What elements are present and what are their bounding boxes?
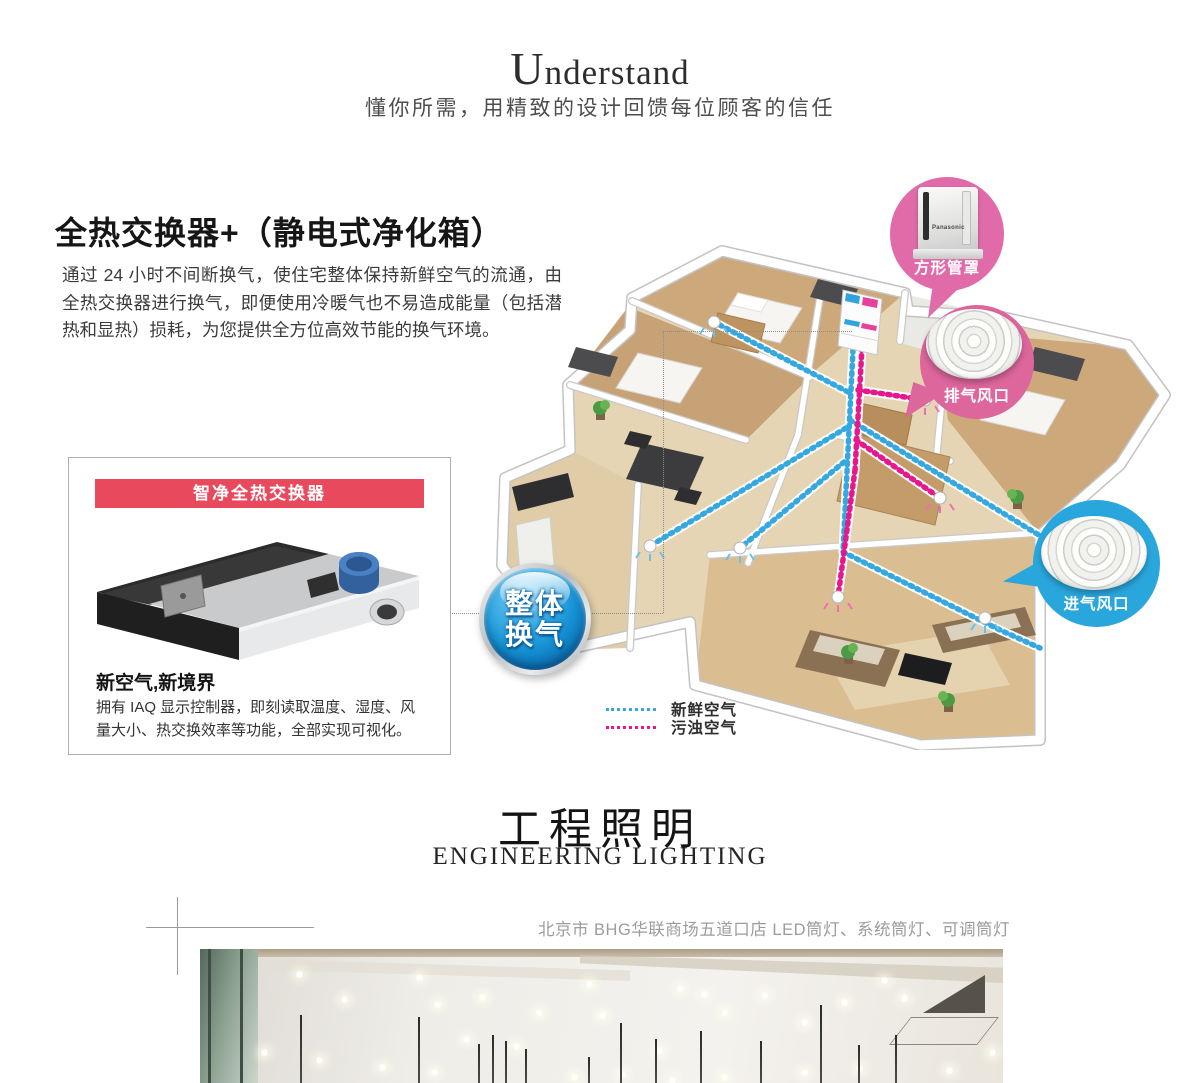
ceiling-downlight [478, 994, 487, 1001]
callout-label-exhaust: 排气风口 [920, 384, 1034, 406]
intake-vent-image [1041, 516, 1147, 590]
device-slot-right [962, 191, 971, 245]
whole-house-ventilation-badge: 整体 换气 [479, 563, 591, 675]
callout-exhaust-vent: 排气风口 [920, 305, 1034, 419]
ceiling-downlight [840, 999, 849, 1006]
hanging-rod [820, 1005, 822, 1083]
device-slot [923, 192, 929, 240]
hanging-rod [300, 1015, 302, 1083]
store-ceiling-photo [200, 949, 1003, 1083]
hanging-rod [418, 1017, 420, 1083]
ceiling-downlight [535, 1009, 544, 1016]
ceiling-downlight [295, 971, 304, 978]
page-title: Understand [0, 42, 1200, 95]
ceiling-downlight [668, 1077, 677, 1083]
crop-mark-horizontal [146, 927, 314, 928]
product-box: 智净全热交换器 新空气,新境界 拥有 IAQ 显示控制器，即刻读取温度、湿度、风… [68, 457, 451, 755]
guide-line-badge-to-plan [589, 613, 663, 614]
product-banner: 智净全热交换器 [95, 479, 424, 508]
hanging-rod [478, 1044, 480, 1083]
callout-square-duct-cover: Panasonic 方形管罩 [890, 177, 1004, 291]
glass-mullion [208, 949, 211, 1083]
fresh-air-line [606, 708, 656, 711]
ceiling-downlight [945, 1067, 954, 1074]
ceiling-downlight [988, 1049, 997, 1056]
ceiling-downlight [430, 1069, 439, 1076]
ceiling-downlight [415, 974, 424, 981]
ceiling-downlight [570, 1074, 579, 1081]
guide-line-to-unit [663, 331, 852, 332]
crop-mark-vertical [177, 897, 178, 975]
heat-exchanger-product-image [77, 520, 443, 666]
ceiling-downlight [720, 1074, 729, 1081]
ceiling-downlight [900, 995, 909, 1002]
page-subtitle: 懂你所需，用精致的设计回馈每位顾客的信任 [0, 92, 1200, 122]
photo-caption: 北京市 BHG华联商场五道口店 LED筒灯、系统筒灯、可调筒灯 [538, 916, 1010, 940]
badge-text: 整体 换气 [479, 563, 591, 675]
glass-panel [200, 949, 258, 1083]
square-duct-device-image: Panasonic [918, 187, 978, 253]
hanging-rod [620, 1023, 622, 1083]
guide-line-vertical [663, 331, 664, 613]
ceiling-downlight [720, 1009, 729, 1016]
hanging-rod [700, 1031, 702, 1083]
badge-line2: 换气 [505, 619, 565, 650]
guide-line-box-to-badge [449, 613, 481, 614]
exhaust-vent-image [926, 309, 1022, 379]
ceiling-downlight [340, 996, 349, 1003]
callout-label-intake: 进气风口 [1033, 592, 1160, 614]
brochure-page: Understand 懂你所需，用精致的设计回馈每位顾客的信任 全热交换器+（静… [0, 0, 1200, 1083]
ceiling-downlight [512, 1043, 521, 1050]
product-description: 拥有 IAQ 显示控制器，即刻读取温度、湿度、风量大小、热交换效率等功能，全部实… [96, 696, 428, 742]
hanging-rod [525, 1049, 527, 1083]
hanging-rod [655, 1039, 657, 1083]
heat-exchanger-unit-plan [838, 290, 882, 355]
dirty-air-line [606, 726, 656, 729]
hanging-rod [895, 1035, 897, 1083]
ceiling-downlight [585, 981, 594, 988]
lighting-heading-en: ENGINEERING LIGHTING [0, 843, 1200, 871]
ceiling-downlight [598, 1012, 607, 1019]
ceiling-shade-band-left [200, 957, 630, 987]
ceiling-downlight [880, 977, 889, 984]
ceiling-downlight [676, 985, 685, 992]
hanging-rod [588, 1057, 590, 1083]
callout-intake-vent: 进气风口 [1033, 500, 1160, 627]
ceiling-downlight [800, 1019, 809, 1026]
ceiling-downlight [760, 992, 769, 999]
ceiling-downlight [700, 991, 709, 998]
glass-mullion [240, 949, 243, 1083]
brand-label: Panasonic [932, 225, 965, 231]
legend-dirty-air: 污浊空气 [606, 718, 737, 736]
hanging-rod [492, 1035, 494, 1083]
dirty-air-label: 污浊空气 [671, 716, 737, 738]
product-title: 新空气,新境界 [96, 668, 215, 695]
ceiling-downlight [800, 1069, 809, 1076]
ceiling-downlight [433, 1001, 442, 1008]
section-heading-heat-exchanger: 全热交换器+（静电式净化箱） [55, 208, 504, 254]
airflow-legend: 新鲜空气 污浊空气 [606, 700, 737, 736]
hanging-rod [858, 1045, 860, 1083]
hanging-rod [760, 1041, 762, 1083]
ceiling-frame-outline [889, 1017, 999, 1045]
callout-label-square-duct: 方形管罩 [890, 256, 1004, 278]
ceiling-downlight [260, 1049, 269, 1056]
hanging-rod [505, 1041, 507, 1083]
ceiling-downlight [378, 1064, 387, 1071]
badge-line1: 整体 [505, 588, 565, 619]
ceiling-downlight [462, 1036, 471, 1043]
ceiling-downlight [315, 1057, 324, 1064]
